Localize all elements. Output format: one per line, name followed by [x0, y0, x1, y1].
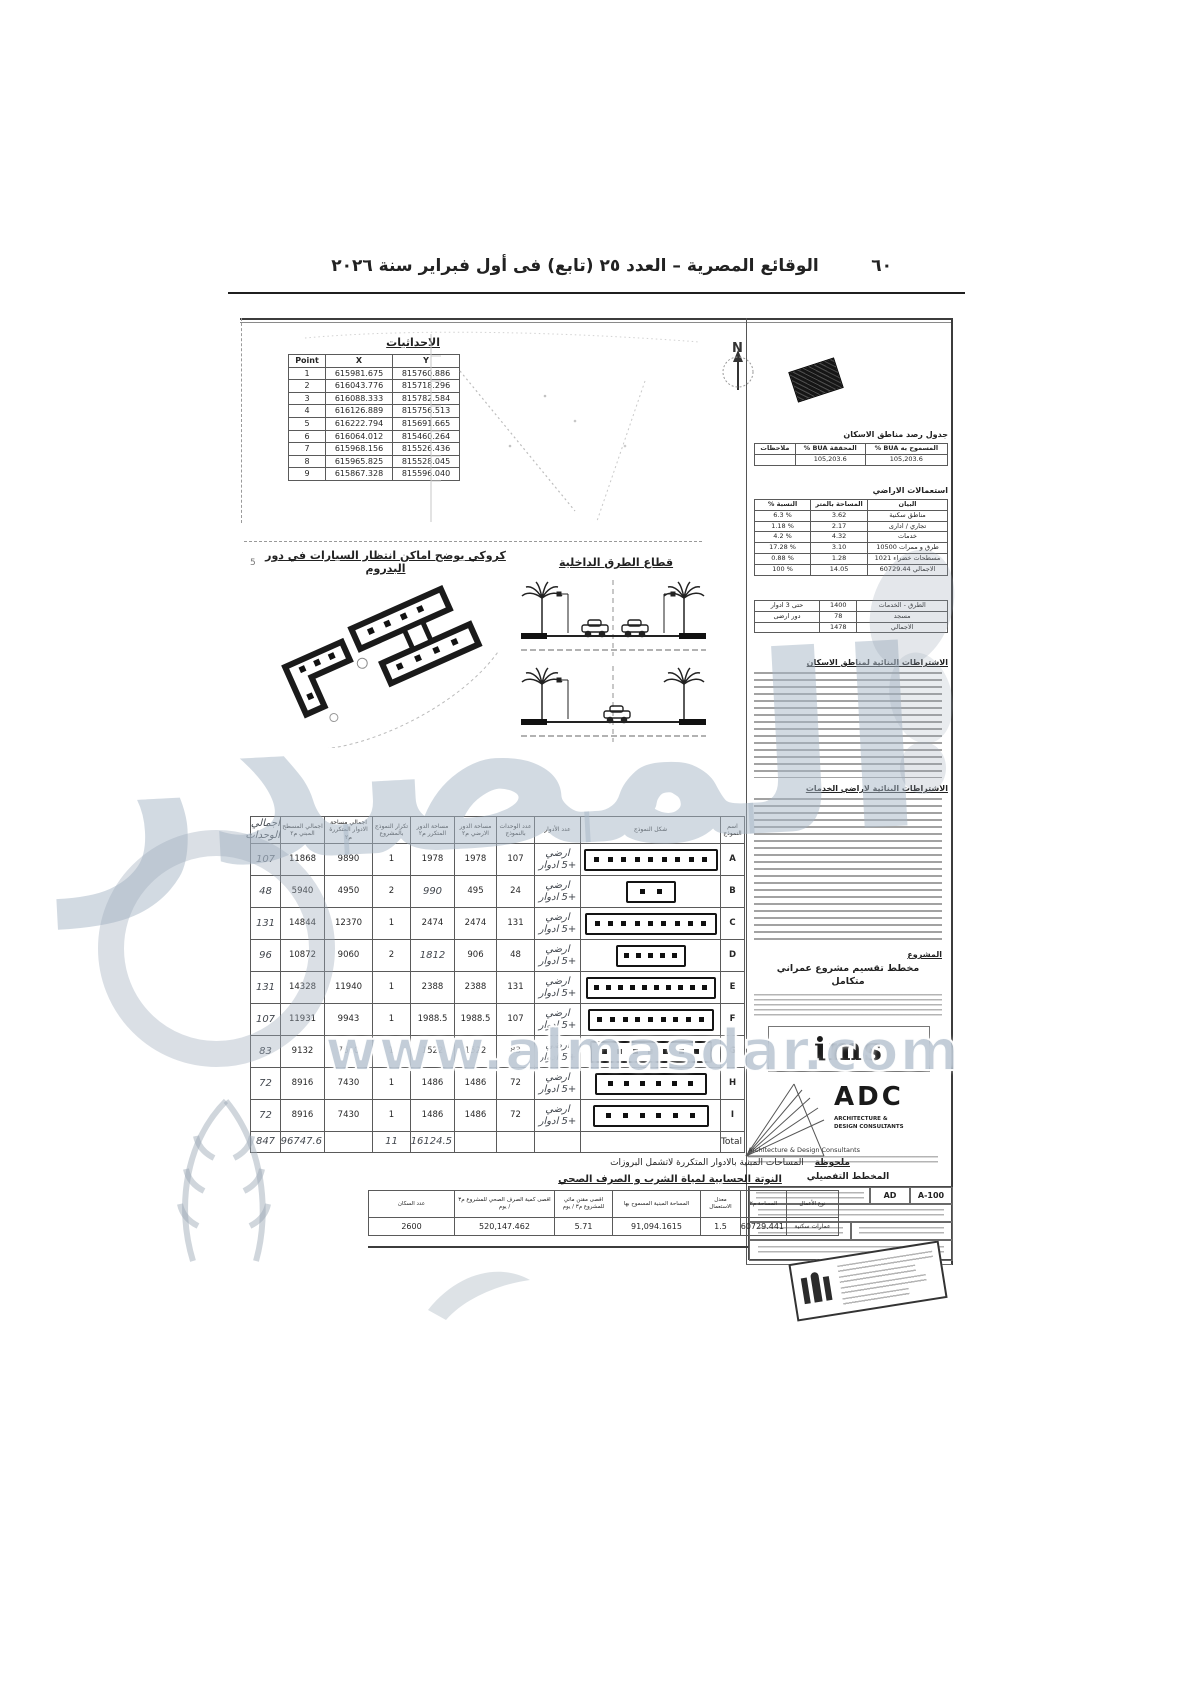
model-built: 10872	[281, 940, 325, 972]
models-total-typical: 16124.5	[411, 1132, 455, 1153]
water-header-max-water: اقصى مقنن مائي للمشروع م٣ / يوم	[555, 1191, 613, 1218]
model-units: 107	[497, 844, 535, 876]
gazette-page: الوقائع المصرية – العدد ٢٥ (تابع) فى أول…	[0, 0, 1190, 1684]
models-header-floors: عدد الأدوار	[535, 817, 581, 844]
models-header-units-total: اجمالي الوحدات	[251, 817, 281, 844]
model-floors: ارضي +5 ادوار	[535, 844, 581, 876]
model-hw_total: 96	[251, 940, 281, 972]
model-ground: 1486	[455, 1100, 497, 1132]
table-cell: % 17.28	[755, 543, 811, 554]
model-total_typical: 7610	[325, 1036, 373, 1068]
model-floors: ارضي +5 ادوار	[535, 876, 581, 908]
model-total_typical: 11940	[325, 972, 373, 1004]
models-header-built: اجمالي المسطح المبني م٢	[281, 817, 325, 844]
building-footprint-icon	[616, 945, 686, 967]
models-header-repeat: تكرار النموذج بالمشروع	[373, 817, 411, 844]
palm-tree-icon	[664, 582, 704, 633]
table-row: الاجمالي 60729.4414.05% 100	[755, 564, 948, 575]
model-hw_total: 131	[251, 908, 281, 940]
model-built: 11931	[281, 1004, 325, 1036]
model-total_typical: 12370	[325, 908, 373, 940]
frame-top-line-2	[240, 322, 952, 323]
model-floors: ارضي +5 ادوار	[535, 908, 581, 940]
table-cell: 2.17	[811, 521, 868, 532]
model-hw_total: 107	[251, 844, 281, 876]
model-hw_total: 72	[251, 1100, 281, 1132]
header-rule	[228, 292, 965, 294]
table-row: عمارات سكنية 60729.441 1.5 91,094.1615 5…	[369, 1218, 839, 1236]
table-header-row: البيان المساحة بالمتر النسبة %	[755, 500, 948, 511]
model-repeat: 1	[373, 1004, 411, 1036]
model-repeat: 1	[373, 1036, 411, 1068]
model-name: F	[721, 1004, 745, 1036]
services-requirements-text	[754, 798, 942, 944]
model-footprint-shape	[581, 1068, 721, 1100]
model-total_typical: 9890	[325, 844, 373, 876]
model-repeat: 2	[373, 940, 411, 972]
table-cell: 14.05	[811, 564, 868, 575]
model-floors: ارضي +5 ادوار	[535, 1068, 581, 1100]
model-units: 131	[497, 972, 535, 1004]
table-row: مسجد78دور ارضى	[755, 611, 948, 622]
palm-tree-icon	[522, 668, 562, 719]
model-name: C	[721, 908, 745, 940]
project-title-2: متكامل	[750, 976, 946, 987]
model-total_typical: 9060	[325, 940, 373, 972]
model-hw_total: 48	[251, 876, 281, 908]
model-typical: 2474	[411, 908, 455, 940]
services-table: الطرق - الخدمات1400حتى 3 ادوارمسجد78دور …	[754, 600, 948, 633]
table-header-row: اسم النموذج شكل النموذج عدد الأدوار عدد …	[251, 817, 745, 844]
car-icon	[622, 620, 648, 637]
model-footprint-shape	[581, 876, 721, 908]
model-units: 48	[497, 940, 535, 972]
model-row: Eارضي +5 ادوار1312388238811194014328131	[251, 972, 745, 1004]
model-hw_total: 72	[251, 1068, 281, 1100]
table-cell: مسجد	[857, 611, 948, 622]
model-typical: 2388	[411, 972, 455, 1004]
model-typical: 1486	[411, 1100, 455, 1132]
building-footprint-icon	[586, 977, 716, 999]
model-floors: ارضي +5 ادوار	[535, 1036, 581, 1068]
water-value-allowed: 91,094.1615	[613, 1218, 701, 1236]
table-cell: مناطق سكنية	[868, 510, 948, 521]
model-built: 11868	[281, 844, 325, 876]
model-name: H	[721, 1068, 745, 1100]
gazette-header-title: الوقائع المصرية – العدد ٢٥ (تابع) فى أول…	[300, 256, 850, 276]
palm-tree-icon	[522, 582, 562, 633]
road-cross-section-2	[516, 662, 712, 746]
models-total-shape	[581, 1132, 721, 1153]
models-note: ملحوظة المساحات المبنية بالادوار المتكرر…	[480, 1158, 850, 1168]
model-typical: 990	[411, 876, 455, 908]
bua-table: المسموح به BUA % المحققة BUA % ملاحظات 1…	[754, 443, 948, 466]
model-typical: 1978	[411, 844, 455, 876]
models-total-repeat: 11	[373, 1132, 411, 1153]
table-row: خدمات4.32% 4.2	[755, 532, 948, 543]
models-header-units: عدد الوحدات بالنموذج	[497, 817, 535, 844]
bua-notes-value	[755, 454, 796, 465]
note-text: المساحات المبنية بالادوار المتكررة لاتشم…	[610, 1158, 804, 1168]
landuse-table: البيان المساحة بالمتر النسبة % مناطق سكن…	[754, 499, 948, 576]
model-hw_total: 131	[251, 972, 281, 1004]
water-header-population: عدد السكان	[369, 1191, 455, 1218]
title-block-text	[859, 1227, 944, 1235]
model-row: Iارضي +5 ادوار721486148617430891672	[251, 1100, 745, 1132]
model-typical: 1522	[411, 1036, 455, 1068]
table-cell: دور ارضى	[755, 611, 820, 622]
water-header-allowed: المساحة المبنية المسموح بها	[613, 1191, 701, 1218]
model-name: E	[721, 972, 745, 1004]
models-total-units	[497, 1132, 535, 1153]
ims-logo: ims	[768, 1026, 930, 1072]
table-row: 105,203.6 105,203.6	[755, 454, 948, 465]
model-row: Cارضي +5 ادوار1312474247411237014844131	[251, 908, 745, 940]
landuse-title: استعمالات الاراضي	[750, 486, 948, 495]
frame-left-line	[241, 318, 242, 523]
building-footprint-icon	[584, 849, 718, 871]
model-typical: 1812	[411, 940, 455, 972]
adc-sub2: DESIGN CONSULTANTS	[834, 1124, 904, 1130]
frame-top-line	[240, 318, 952, 320]
models-total-name: Total	[721, 1132, 745, 1153]
model-built: 14844	[281, 908, 325, 940]
model-built: 14328	[281, 972, 325, 1004]
model-typical: 1486	[411, 1068, 455, 1100]
stamp-logo-icon	[798, 1270, 835, 1309]
watermark-swoosh-icon	[420, 1258, 535, 1324]
building-footprint-icon	[585, 913, 717, 935]
model-footprint-shape	[581, 1036, 721, 1068]
water-value-rate: 1.5	[701, 1218, 741, 1236]
palm-tree-icon	[664, 668, 704, 719]
table-cell: الطرق - الخدمات	[857, 601, 948, 612]
water-value-area: 60729.441	[741, 1218, 787, 1236]
models-total-hw_total: 847	[251, 1132, 281, 1153]
models-total-row: Total16124.51196747.6847	[251, 1132, 745, 1153]
model-floors: ارضي +5 ادوار	[535, 940, 581, 972]
housing-requirements-text	[754, 672, 942, 778]
adc-sub1: ARCHITECTURE &	[834, 1116, 888, 1122]
owner-text	[754, 994, 942, 1018]
model-footprint-shape	[581, 908, 721, 940]
landuse-pct-header: النسبة %	[755, 500, 811, 511]
water-value-max-sewage: 520,147.462	[455, 1218, 555, 1236]
model-ground: 1486	[455, 1068, 497, 1100]
model-footprint-shape	[581, 1004, 721, 1036]
model-row: Gارضي +5 ادوار831522152217610913283	[251, 1036, 745, 1068]
table-cell: % 100	[755, 564, 811, 575]
building-block-shape	[285, 642, 363, 715]
street-lamp-icon	[557, 678, 568, 719]
frame-right-line	[951, 318, 953, 1265]
model-hw_total: 83	[251, 1036, 281, 1068]
model-repeat: 1	[373, 1100, 411, 1132]
table-header-row: المسموح به BUA % المحققة BUA % ملاحظات	[755, 444, 948, 455]
water-header-rate: معدل الاستعمال	[701, 1191, 741, 1218]
table-row: الطرق - الخدمات1400حتى 3 ادوار	[755, 601, 948, 612]
model-footprint-shape	[581, 972, 721, 1004]
table-cell: طرق و ممرات 10500	[868, 543, 948, 554]
model-floors: ارضي +5 ادوار	[535, 972, 581, 1004]
note-label: ملحوظة	[815, 1158, 850, 1168]
table-cell	[755, 622, 820, 633]
building-footprint-icon	[590, 1041, 712, 1063]
building-footprint-icon	[588, 1009, 714, 1031]
landuse-desc-header: البيان	[868, 500, 948, 511]
model-row: Hارضي +5 ادوار721486148617430891672	[251, 1068, 745, 1100]
model-floors: ارضي +5 ادوار	[535, 1100, 581, 1132]
table-cell: الاجمالي	[857, 622, 948, 633]
model-row: Aارضي +5 ادوار107197819781989011868107	[251, 844, 745, 876]
water-calc-table: نوع الأعمال المساحة م٢ معدل الاستعمال ال…	[368, 1190, 839, 1236]
model-total_typical: 4950	[325, 876, 373, 908]
table-row: الاجمالي1478	[755, 622, 948, 633]
model-typical: 1988.5	[411, 1004, 455, 1036]
model-name: D	[721, 940, 745, 972]
model-built: 5940	[281, 876, 325, 908]
table-cell: 78	[820, 611, 857, 622]
car-icon	[604, 706, 630, 723]
building-footprint-icon	[595, 1073, 707, 1095]
model-ground: 2388	[455, 972, 497, 1004]
model-repeat: 2	[373, 876, 411, 908]
adc-logo-text: ADC	[834, 1082, 904, 1112]
landuse-area-header: المساحة بالمتر	[811, 500, 868, 511]
frame-mid-line	[244, 541, 702, 543]
model-ground: 2474	[455, 908, 497, 940]
table-cell: مسطحات خضراء 1021	[868, 553, 948, 564]
model-footprint-shape	[581, 940, 721, 972]
table-cell: 3.62	[811, 510, 868, 521]
table-row: طرق و ممرات 105003.10% 17.28	[755, 543, 948, 554]
street-lamp-icon	[557, 592, 568, 633]
table-row: مناطق سكنية3.62% 6.3	[755, 510, 948, 521]
model-ground: 1988.5	[455, 1004, 497, 1036]
housing-monitor-title: جدول رصد مناطق الاسكان	[750, 430, 948, 439]
model-built: 8916	[281, 1100, 325, 1132]
table-cell: الاجمالي 60729.44	[868, 564, 948, 575]
ims-logo-text: ims	[814, 1030, 884, 1068]
model-repeat: 1	[373, 972, 411, 1004]
table-cell: 1.28	[811, 553, 868, 564]
models-total-total_typical	[325, 1132, 373, 1153]
table-cell: % 6.3	[755, 510, 811, 521]
models-total-built: 96747.6	[281, 1132, 325, 1153]
models-header-total-typical: اجمالي مساحة الادوار المتكررة م٢	[325, 817, 373, 844]
table-cell: 1478	[820, 622, 857, 633]
table-cell: خدمات	[868, 532, 948, 543]
building-footprint-icon	[593, 1105, 709, 1127]
model-row: Bارضي +5 ادوار2449599024950594048	[251, 876, 745, 908]
model-footprint-shape	[581, 1100, 721, 1132]
models-header-shape: شكل النموذج	[581, 817, 721, 844]
model-repeat: 1	[373, 844, 411, 876]
page-number: ٦٠	[852, 256, 892, 276]
bua-achieved-value: 105,203.6	[795, 454, 865, 465]
model-footprint-shape	[581, 844, 721, 876]
north-arrow-icon: N	[722, 338, 756, 394]
road-cross-section-1	[516, 576, 712, 660]
services-requirements-title: الاشتراطات البنائية لاراضي الخدمات	[748, 784, 948, 793]
models-header-typical: مساحة الدور المتكرر م٢	[411, 817, 455, 844]
table-cell: 1400	[820, 601, 857, 612]
models-total-floors	[535, 1132, 581, 1153]
model-units: 24	[497, 876, 535, 908]
water-header-max-sewage: اقصى كمية الصرف الصحي للمشروع م٣ / يوم	[455, 1191, 555, 1218]
adc-logo: ADC ARCHITECTURE & DESIGN CONSULTANTS Ar…	[738, 1076, 950, 1168]
housing-requirements-title: الاشتراطات البنائية لمناطق الاسكان	[748, 658, 948, 667]
street-lamp-icon	[664, 592, 675, 633]
building-footprint-icon	[626, 881, 676, 903]
model-units: 83	[497, 1036, 535, 1068]
adc-sub3: Architecture & Design Consultants	[748, 1146, 860, 1154]
project-title: مخطط تقسيم مشروع عمراني	[750, 963, 946, 974]
model-ground: 1978	[455, 844, 497, 876]
models-header-name: اسم النموذج	[721, 817, 745, 844]
parking-basement-sketch	[262, 568, 507, 748]
model-name: G	[721, 1036, 745, 1068]
model-repeat: 1	[373, 908, 411, 940]
roads-section-title: قطاع الطرق الداخلية	[532, 556, 700, 569]
model-row: Dارضي +5 ادوار489061812290601087296	[251, 940, 745, 972]
model-built: 9132	[281, 1036, 325, 1068]
model-units: 131	[497, 908, 535, 940]
building-models-table: اسم النموذج شكل النموذج عدد الأدوار عدد …	[250, 816, 745, 1153]
table-cell: % 1.18	[755, 521, 811, 532]
table-header-row: نوع الأعمال المساحة م٢ معدل الاستعمال ال…	[369, 1191, 839, 1218]
model-name: A	[721, 844, 745, 876]
model-units: 107	[497, 1004, 535, 1036]
stamp-text	[837, 1251, 938, 1306]
bua-allowed-header: المسموح به BUA %	[865, 444, 947, 455]
water-value-population: 2600	[369, 1218, 455, 1236]
model-name: B	[721, 876, 745, 908]
table-cell: تجاري / ادارى	[868, 521, 948, 532]
water-value-max-water: 5.71	[555, 1218, 613, 1236]
water-value-works: عمارات سكنية	[787, 1218, 839, 1236]
model-ground: 906	[455, 940, 497, 972]
model-floors: ارضي +5 ادوار	[535, 1004, 581, 1036]
model-name: I	[721, 1100, 745, 1132]
table-cell: % 0.88	[755, 553, 811, 564]
margin-mark: 5	[250, 558, 256, 568]
water-calc-title: النوتة الحسابية لمياة الشرب و الصرف الصح…	[545, 1174, 795, 1185]
table-cell: 4.32	[811, 532, 868, 543]
model-row: Fارضي +5 ادوار1071988.51988.519943119311…	[251, 1004, 745, 1036]
bua-achieved-header: المحققة BUA %	[795, 444, 865, 455]
model-units: 72	[497, 1100, 535, 1132]
model-ground: 495	[455, 876, 497, 908]
model-total_typical: 7430	[325, 1100, 373, 1132]
table-cell: 3.10	[811, 543, 868, 554]
bua-allowed-value: 105,203.6	[865, 454, 947, 465]
model-built: 8916	[281, 1068, 325, 1100]
model-total_typical: 7430	[325, 1068, 373, 1100]
table-cell: حتى 3 ادوار	[755, 601, 820, 612]
water-header-area: المساحة م٢	[741, 1191, 787, 1218]
key-plan-block	[788, 357, 844, 402]
table-row: تجاري / ادارى2.17% 1.18	[755, 521, 948, 532]
table-row: مسطحات خضراء 10211.28% 0.88	[755, 553, 948, 564]
project-label: المشروع	[860, 950, 942, 959]
bua-notes-header: ملاحظات	[755, 444, 796, 455]
model-ground: 1522	[455, 1036, 497, 1068]
models-total-ground	[455, 1132, 497, 1153]
site-plan-sketch	[245, 326, 715, 531]
model-total_typical: 9943	[325, 1004, 373, 1036]
model-hw_total: 107	[251, 1004, 281, 1036]
model-repeat: 1	[373, 1068, 411, 1100]
model-units: 72	[497, 1068, 535, 1100]
models-header-ground: مساحة الدور الارضي م٢	[455, 817, 497, 844]
water-header-works: نوع الأعمال	[787, 1191, 839, 1218]
car-icon	[582, 620, 608, 637]
table-cell: % 4.2	[755, 532, 811, 543]
